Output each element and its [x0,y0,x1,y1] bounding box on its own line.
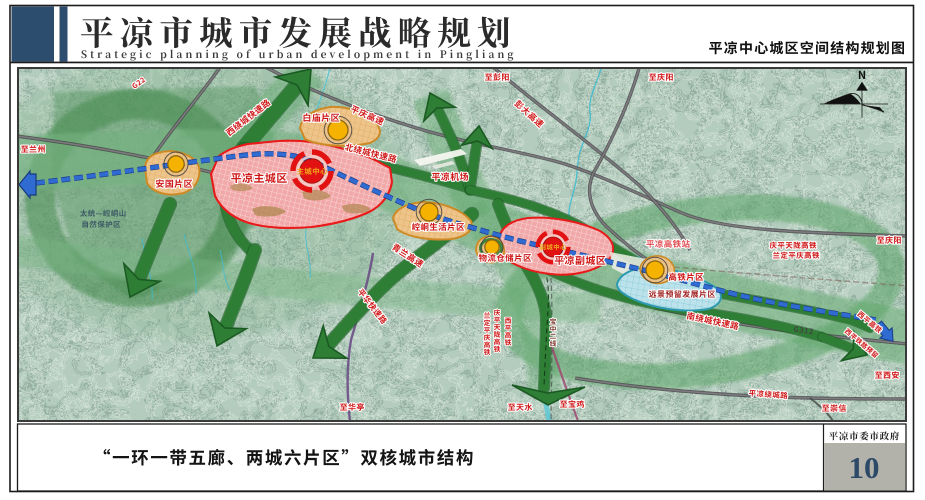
svg-text:10: 10 [849,450,880,485]
